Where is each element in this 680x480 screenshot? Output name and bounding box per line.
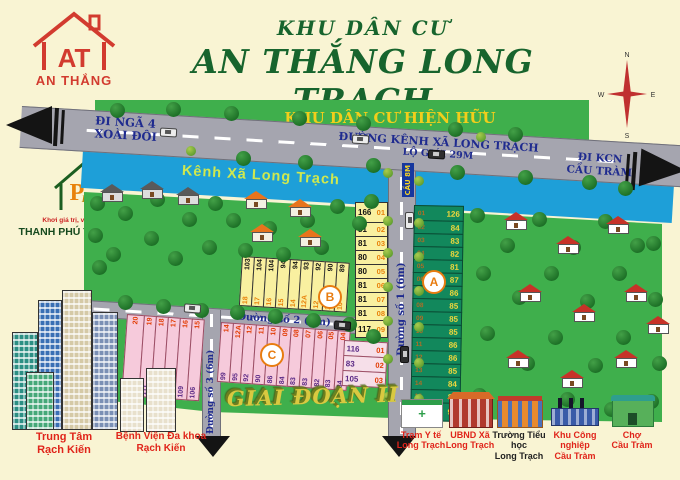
tree-icon bbox=[544, 266, 559, 281]
tree-icon bbox=[383, 216, 393, 226]
tree-icon bbox=[182, 212, 197, 227]
bridge-sign: CẦU 8M bbox=[402, 163, 414, 197]
west-arrow-icon bbox=[6, 106, 52, 144]
east-arrow-icon bbox=[639, 148, 680, 189]
tree-icon bbox=[532, 212, 547, 227]
at-logo: AT AN THẮNG bbox=[22, 6, 126, 88]
city-center-label: Trung TâmRạch Kiến bbox=[14, 431, 114, 456]
tree-icon bbox=[156, 299, 171, 314]
tree-icon bbox=[224, 106, 239, 121]
car-icon bbox=[405, 212, 414, 229]
house-outline-icon: AT bbox=[24, 6, 124, 72]
tree-icon bbox=[518, 170, 533, 185]
hospital-buildings bbox=[120, 368, 180, 432]
tree-icon bbox=[476, 266, 491, 281]
tree-icon bbox=[476, 132, 486, 142]
compass-w: W bbox=[598, 92, 605, 99]
plot-column-section-c-right: 11601 8302 10503 bbox=[342, 341, 388, 388]
tree-icon bbox=[414, 218, 424, 228]
tree-icon bbox=[110, 103, 125, 118]
tree-icon bbox=[630, 238, 645, 253]
tree-icon bbox=[450, 165, 465, 180]
plot: 8103 bbox=[355, 236, 388, 251]
at-logo-name: AN THẮNG bbox=[22, 73, 126, 88]
primary-school-icon bbox=[497, 400, 543, 428]
tree-icon bbox=[383, 354, 393, 364]
tree-icon bbox=[646, 236, 661, 251]
tree-icon bbox=[364, 194, 379, 209]
tree-icon bbox=[88, 228, 103, 243]
market-label: ChợCầu Tràm bbox=[608, 430, 656, 451]
phase-2-label: GIAI ĐOẠN II bbox=[218, 382, 409, 412]
car-icon bbox=[334, 320, 352, 330]
car-icon bbox=[428, 150, 445, 160]
house-icon bbox=[624, 284, 648, 301]
primary-school-label: Trường Tiểu họcLong Trạch bbox=[488, 430, 550, 461]
tree-icon bbox=[652, 356, 667, 371]
tower-icon bbox=[120, 378, 144, 432]
house-icon bbox=[250, 224, 274, 241]
tree-icon bbox=[618, 181, 633, 196]
tree-icon bbox=[144, 231, 159, 246]
compass-rose-icon: N S W E bbox=[598, 48, 656, 140]
tree-icon bbox=[448, 122, 463, 137]
tree-icon bbox=[612, 266, 627, 281]
section-marker-b: B bbox=[318, 285, 342, 309]
house-icon bbox=[572, 304, 596, 321]
section-marker-c: C bbox=[260, 343, 284, 367]
direction-left-label: ĐI NGÃ 4XOÀI ĐÔI bbox=[94, 114, 158, 144]
house-icon bbox=[176, 187, 200, 204]
tree-icon bbox=[414, 252, 424, 262]
tower-icon bbox=[146, 368, 176, 432]
tree-icon bbox=[166, 102, 181, 117]
tree-icon bbox=[414, 322, 424, 332]
house-icon bbox=[560, 370, 584, 387]
tower-icon bbox=[92, 312, 118, 430]
tree-icon bbox=[92, 260, 107, 275]
house-icon bbox=[606, 216, 630, 233]
tree-icon bbox=[202, 240, 217, 255]
city-center-buildings bbox=[10, 288, 122, 430]
tree-icon bbox=[356, 116, 371, 131]
tree-icon bbox=[366, 158, 381, 173]
house-icon bbox=[244, 191, 268, 208]
car-icon bbox=[160, 128, 177, 138]
house-icon bbox=[556, 236, 580, 253]
house-icon bbox=[140, 181, 164, 198]
tree-icon bbox=[414, 176, 424, 186]
tree-icon bbox=[186, 146, 196, 156]
tree-icon bbox=[383, 248, 393, 258]
tree-icon bbox=[383, 282, 393, 292]
hospital-label: Bệnh Viện Đa khoaRạch Kiến bbox=[106, 431, 216, 454]
tower-icon bbox=[26, 372, 54, 430]
tree-icon bbox=[268, 309, 283, 324]
tree-icon bbox=[292, 111, 307, 126]
tree-icon bbox=[118, 206, 133, 221]
market-icon bbox=[612, 400, 654, 427]
tree-icon bbox=[226, 213, 241, 228]
tree-icon bbox=[648, 292, 663, 307]
house-icon bbox=[504, 212, 528, 229]
title-line1: KHU DÂN CƯ bbox=[128, 16, 598, 40]
tree-icon bbox=[168, 251, 183, 266]
house-icon bbox=[100, 184, 124, 201]
tree-icon bbox=[500, 238, 515, 253]
house-icon bbox=[646, 316, 670, 333]
tree-icon bbox=[383, 168, 393, 178]
tree-icon bbox=[582, 175, 597, 190]
tree-icon bbox=[383, 316, 393, 326]
section-marker-a: A bbox=[422, 270, 446, 294]
car-icon bbox=[400, 346, 409, 363]
street-3-label: Đường số 3 (6m) bbox=[206, 342, 216, 434]
tree-icon bbox=[306, 313, 321, 328]
car-icon bbox=[352, 135, 369, 145]
plot: 8005 bbox=[355, 264, 388, 279]
tree-icon bbox=[616, 330, 631, 345]
tree-icon bbox=[548, 330, 563, 345]
tree-icon bbox=[230, 305, 245, 320]
tree-icon bbox=[366, 329, 381, 344]
tree-icon bbox=[298, 155, 313, 170]
house-icon bbox=[518, 284, 542, 301]
industrial-park-label: Khu Công nghiệpCầu Tràm bbox=[544, 430, 606, 461]
compass-e: E bbox=[651, 92, 656, 99]
tower-icon bbox=[62, 290, 92, 430]
industrial-park-icon bbox=[551, 397, 597, 426]
car-icon bbox=[184, 303, 202, 313]
canal-label: Kênh Xã Long Trạch bbox=[181, 163, 340, 188]
tree-icon bbox=[208, 196, 223, 211]
at-logo-initials: AT bbox=[58, 43, 91, 72]
plot: 8107 bbox=[355, 292, 388, 307]
tree-icon bbox=[330, 199, 345, 214]
masterplan-map: AT AN THẮNG KHU DÂN CƯ AN THẮNG LONG TRẠ… bbox=[0, 0, 680, 480]
tree-icon bbox=[588, 358, 603, 373]
tree-icon bbox=[106, 247, 121, 262]
tree-icon bbox=[238, 243, 253, 258]
tree-icon bbox=[480, 326, 495, 341]
house-icon bbox=[288, 199, 312, 216]
compass-n: N bbox=[624, 52, 629, 59]
street-1-label: Đường số 1 (6m) bbox=[396, 236, 407, 356]
tree-icon bbox=[470, 208, 485, 223]
compass-s: S bbox=[625, 133, 630, 140]
direction-right-label: ĐI KCNCẦU TRÀM bbox=[566, 150, 633, 179]
tree-icon bbox=[352, 216, 367, 231]
house-icon bbox=[614, 350, 638, 367]
house-icon bbox=[506, 350, 530, 367]
house-icon bbox=[298, 229, 322, 246]
peoples-committee-icon bbox=[449, 398, 493, 428]
tree-icon bbox=[276, 247, 291, 262]
tree-icon bbox=[508, 127, 523, 142]
plot-column-section-a: 01126 0284 0383 0482 0581 0687 0786 0885… bbox=[410, 205, 464, 422]
tree-icon bbox=[414, 358, 424, 368]
tree-icon bbox=[236, 151, 251, 166]
